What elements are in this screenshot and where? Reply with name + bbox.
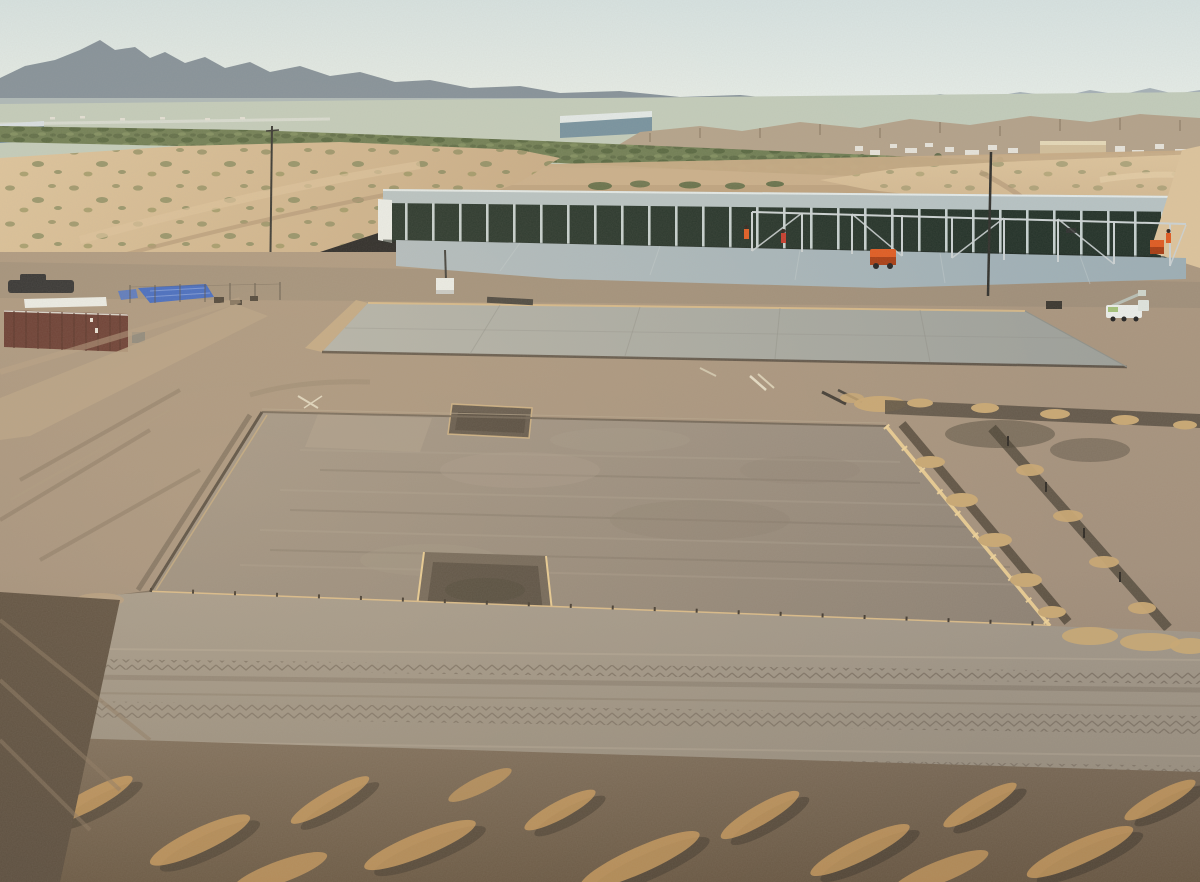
photo-canvas: [0, 0, 1200, 882]
aerial-construction-photo: [0, 0, 1200, 882]
photo-grain: [0, 0, 1200, 882]
